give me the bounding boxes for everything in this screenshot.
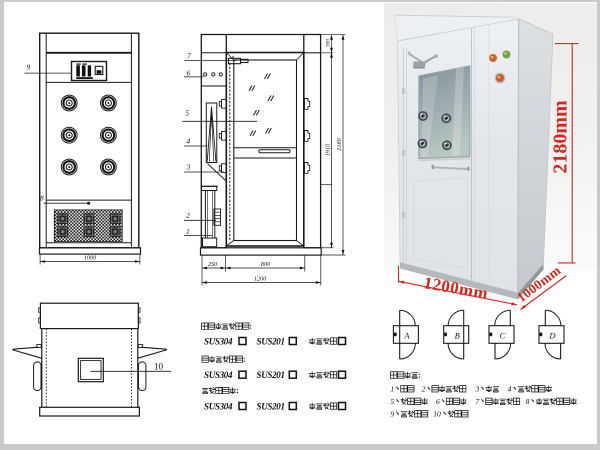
svg-text:1: 1 [390,385,394,394]
svg-text:6: 6 [187,68,191,77]
svg-text:6: 6 [436,397,440,406]
svg-text:2180mm: 2180mm [550,100,572,174]
svg-text:SUS201: SUS201 [257,337,285,347]
svg-text:4: 4 [187,137,191,146]
svg-text:1: 1 [186,227,190,236]
svg-text:SUS304: SUS304 [204,370,233,380]
svg-text:5: 5 [390,397,394,406]
svg-text:10: 10 [433,410,441,419]
svg-text:SUS201: SUS201 [257,402,285,412]
svg-text:3: 3 [474,385,479,394]
svg-text:SUS201: SUS201 [257,370,285,380]
svg-text:2180: 2180 [336,137,343,150]
svg-text:9: 9 [390,410,394,419]
svg-text:1000: 1000 [84,254,97,261]
svg-text:5: 5 [185,109,189,118]
svg-text:3: 3 [186,163,191,172]
svg-text:2: 2 [186,211,190,220]
svg-text:D: D [548,331,556,341]
svg-text:4: 4 [508,385,512,394]
svg-text:7: 7 [187,52,191,61]
svg-text:10: 10 [154,361,164,371]
svg-text:B: B [455,331,460,341]
svg-text:A: A [403,331,410,341]
svg-text:SUS304: SUS304 [204,337,233,347]
svg-text:8: 8 [526,397,530,406]
svg-text:250: 250 [208,261,218,268]
svg-text:9: 9 [27,63,31,72]
svg-text:1200: 1200 [254,275,267,282]
svg-text:800: 800 [261,261,271,268]
svg-text:C: C [500,331,506,341]
svg-text:1910: 1910 [325,143,332,156]
svg-text:8: 8 [40,194,44,203]
svg-text:300: 300 [325,39,331,47]
svg-text:2: 2 [422,385,426,394]
svg-text:SUS304: SUS304 [204,402,233,412]
